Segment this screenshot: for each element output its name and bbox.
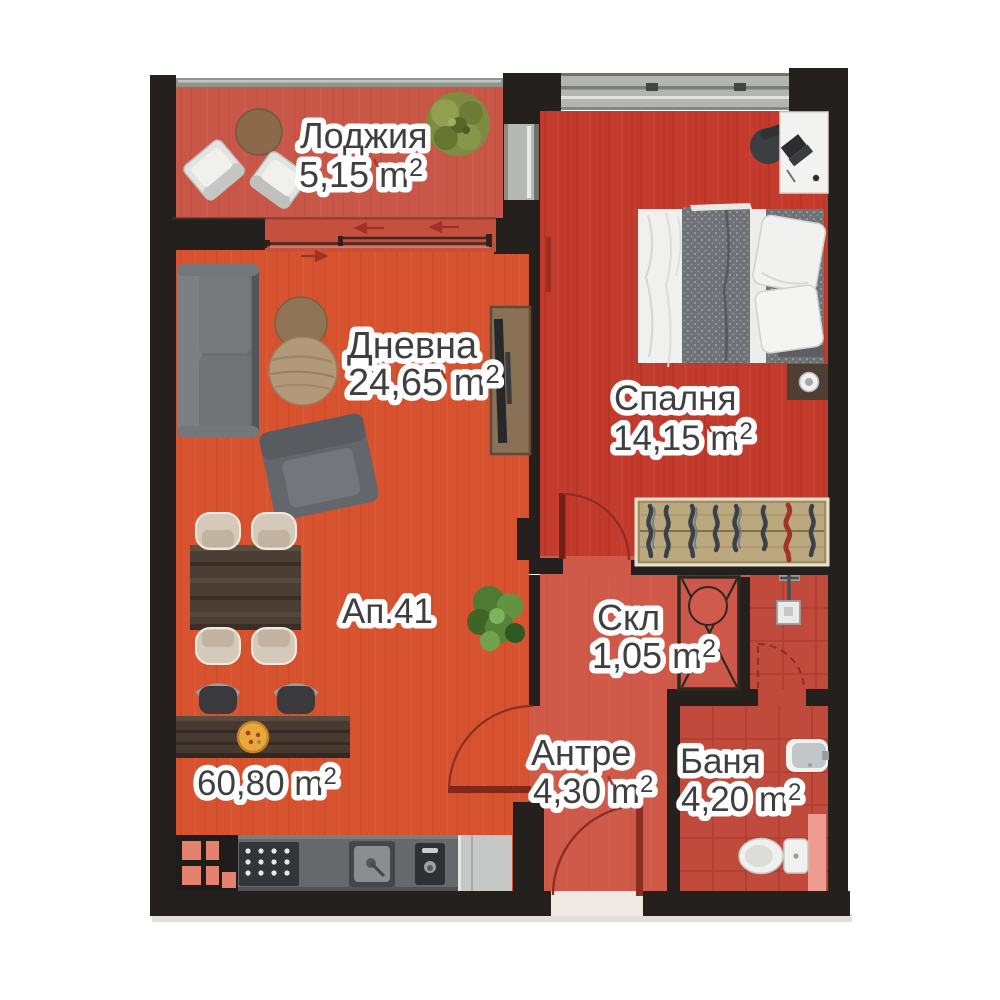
svg-text:Баня: Баня [680,742,761,781]
svg-text:Дневна: Дневна [347,325,478,367]
svg-text:1,05 m2: 1,05 m2 [592,635,716,676]
svg-text:60,80 m2: 60,80 m2 [197,763,337,803]
svg-text:14,15 m2: 14,15 m2 [613,418,753,458]
svg-text:24,65 m2: 24,65 m2 [348,359,500,404]
svg-text:4,30 m2: 4,30 m2 [533,771,653,811]
svg-text:Лоджия: Лоджия [300,115,428,156]
svg-text:Ап.41: Ап.41 [342,592,433,631]
svg-text:Антре: Антре [531,732,631,773]
svg-text:4,20 m2: 4,20 m2 [681,779,801,819]
svg-text:Скл: Скл [597,597,660,638]
svg-text:5,15 m2: 5,15 m2 [299,154,423,195]
svg-text:Спалня: Спалня [614,379,736,418]
